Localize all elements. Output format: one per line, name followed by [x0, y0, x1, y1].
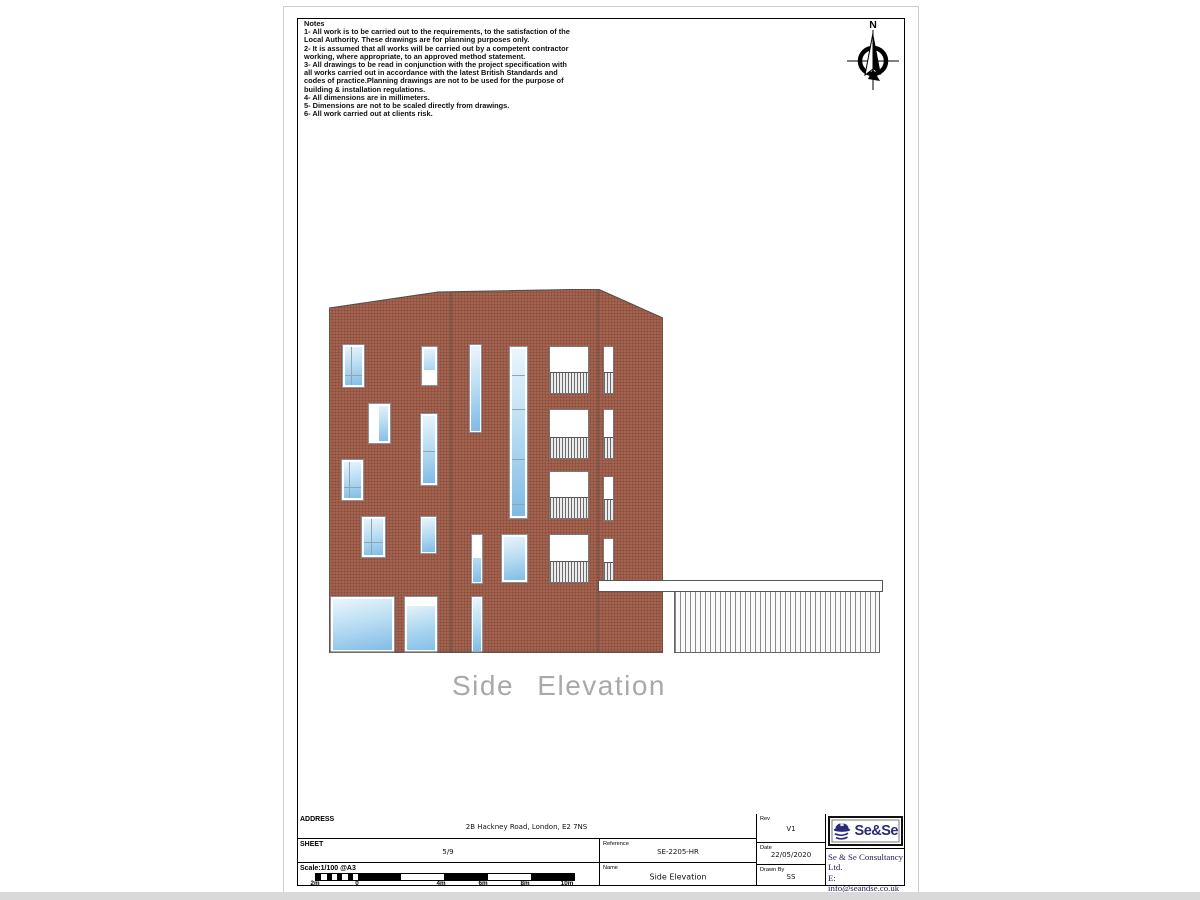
drawn-by-value: SS — [757, 873, 825, 881]
juliet-window — [603, 476, 614, 521]
sheet-value: 5/9 — [297, 848, 599, 856]
rev-cell: Rev V1 — [756, 814, 825, 842]
fence-slats — [674, 592, 880, 653]
drawing-sheet: Notes 1- All work is to be carried out t… — [283, 6, 919, 893]
scale-tick: 2m — [310, 880, 319, 887]
balcony-railing — [550, 561, 588, 582]
window — [471, 596, 483, 653]
balcony — [549, 534, 589, 583]
window — [330, 596, 395, 653]
name-label: Name — [603, 865, 618, 871]
company-email: E: info@seandse.co.uk — [828, 873, 904, 894]
window — [341, 459, 364, 501]
address-value: 2B Hackney Road, London, E2 7NS — [297, 823, 756, 831]
balcony-opening — [604, 410, 613, 438]
name-cell: Name Side Elevation — [599, 862, 756, 886]
balcony-railing — [550, 437, 588, 458]
window — [361, 516, 386, 558]
entrance-door — [404, 596, 438, 653]
address-cell: ADDRESS 2B Hackney Road, London, E2 7NS — [297, 814, 756, 838]
bottom-strip — [0, 892, 1200, 900]
scale-tick: 8m — [520, 880, 529, 887]
balcony — [549, 346, 589, 394]
rev-value: V1 — [757, 825, 825, 833]
drawing-caption: Side Elevation — [434, 670, 684, 702]
reference-cell: Reference SE-2205-HR — [599, 838, 756, 862]
hard-hat-icon — [831, 819, 853, 843]
balcony — [549, 471, 589, 519]
balcony-railing — [550, 372, 588, 393]
rev-label: Rev — [760, 816, 770, 822]
logo-text: Se&Se — [855, 823, 898, 839]
building-elevation — [329, 289, 663, 653]
note-line: 6- All work carried out at clients risk. — [304, 110, 554, 118]
drawn-by-cell: Drawn By SS — [756, 864, 825, 886]
window — [421, 346, 438, 386]
date-cell: Date 22/05/2020 — [756, 842, 825, 864]
balcony-opening — [604, 539, 613, 563]
north-arrow: N — [844, 19, 902, 99]
fence-top-rail — [598, 580, 883, 592]
scale-tick: 0 — [355, 880, 359, 887]
balcony-opening — [550, 347, 588, 373]
balcony — [549, 409, 589, 459]
company-cell: Se & Se Consultancy Ltd. E: info@seandse… — [825, 848, 905, 886]
notes-lines: 1- All work is to be carried out to the … — [304, 28, 554, 118]
name-value: Side Elevation — [600, 872, 756, 881]
reference-label: Reference — [603, 841, 629, 847]
company-name: Se & Se Consultancy Ltd. — [828, 852, 904, 873]
scale-cell: Scale:1/100 @A3 2m04m6m8m10m — [297, 862, 599, 886]
scale-tick: 4m — [436, 880, 445, 887]
window — [342, 344, 365, 388]
window — [420, 516, 437, 554]
balcony-railing — [550, 497, 588, 518]
scale-tick: 10m — [561, 880, 574, 887]
sheet-cell: SHEET 5/9 — [297, 838, 599, 862]
screenshot-stage: Notes 1- All work is to be carried out t… — [0, 0, 1200, 900]
company-logo: Se&Se — [828, 816, 903, 846]
date-value: 22/05/2020 — [757, 851, 825, 859]
scale-tick: 6m — [478, 880, 487, 887]
balcony-opening — [550, 535, 588, 562]
balcony-railing — [604, 372, 613, 393]
door-glass — [407, 606, 435, 650]
scale-label: Scale:1/100 @A3 — [300, 865, 356, 872]
address-label: ADDRESS — [300, 816, 334, 823]
balcony-opening — [550, 472, 588, 498]
window — [469, 344, 482, 433]
window — [420, 413, 438, 486]
window — [471, 534, 483, 584]
window — [509, 346, 528, 519]
window — [501, 534, 528, 583]
scale-ticks: 2m04m6m8m10m — [315, 880, 573, 888]
compass-icon — [847, 30, 899, 92]
juliet-window — [603, 346, 614, 394]
balcony-railing — [604, 499, 613, 520]
juliet-window — [603, 538, 614, 583]
balcony-opening — [604, 347, 613, 373]
logo-cell: Se&Se — [825, 814, 905, 848]
juliet-window — [603, 409, 614, 459]
balcony-opening — [604, 477, 613, 500]
notes: Notes 1- All work is to be carried out t… — [304, 20, 554, 118]
balcony-railing — [604, 437, 613, 458]
window — [368, 403, 391, 444]
reference-value: SE-2205-HR — [600, 848, 756, 856]
balcony-opening — [550, 410, 588, 438]
balcony-railing — [604, 562, 613, 582]
